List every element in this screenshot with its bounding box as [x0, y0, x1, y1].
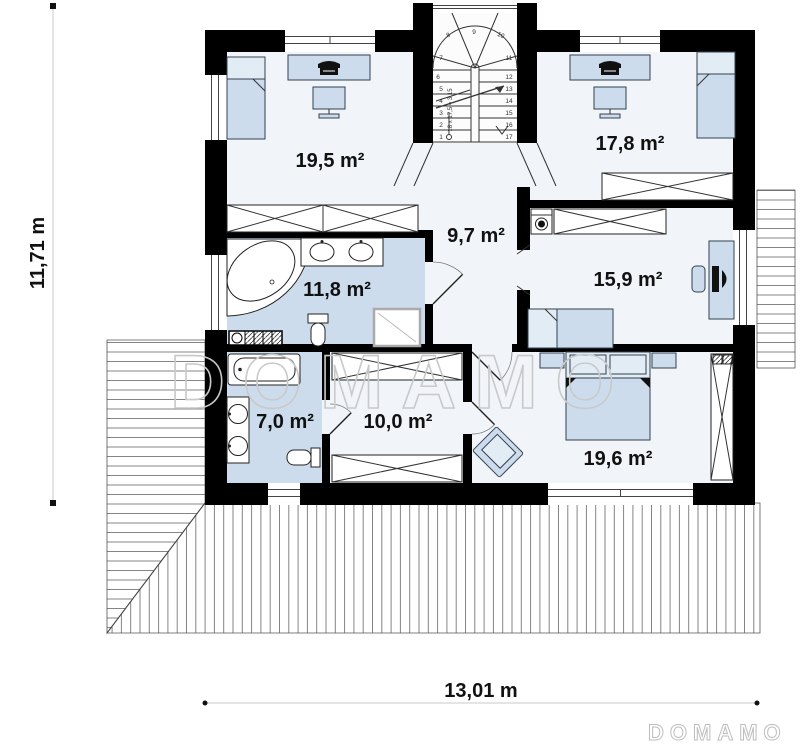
deck-bottom-vertical-planks — [107, 503, 760, 633]
step-number: 9 — [472, 29, 476, 36]
wardrobe-icon — [602, 173, 733, 200]
wardrobe-icon — [711, 354, 733, 480]
window-left-bedroom — [205, 75, 227, 140]
chair-icon — [692, 266, 705, 292]
desk-icon — [570, 55, 650, 80]
room-label-19-5: 19,5 m² — [296, 150, 365, 172]
single-bed-icon — [697, 52, 735, 138]
window-bottom-master — [548, 483, 693, 505]
step-number: 5 — [439, 86, 443, 93]
balcony-door — [733, 230, 755, 325]
window-stairwell — [433, 3, 517, 13]
stair-annotation: 18 x 17,5 = 3,15 — [448, 88, 454, 132]
step-number: 14 — [505, 98, 513, 105]
step-number: 6 — [436, 74, 440, 81]
watermark: DOMAMO — [170, 340, 633, 425]
desk-icon — [288, 55, 370, 80]
desk-icon — [709, 241, 734, 319]
step-number: 17 — [505, 134, 513, 141]
room-label-17-8: 17,8 m² — [596, 133, 665, 155]
step-number: 4 — [439, 98, 443, 105]
step-number: 12 — [505, 74, 513, 81]
window-top-right — [580, 30, 660, 52]
balcony-planks — [757, 190, 795, 368]
floor-plan: 11,71 m 13,01 m — [0, 0, 800, 749]
step-number: 16 — [505, 122, 513, 129]
room-label-19-6: 19,6 m² — [584, 448, 653, 470]
nightstand-icon — [652, 353, 676, 368]
step-number: 3 — [439, 110, 443, 117]
room-label-9-7: 9,7 m² — [447, 225, 505, 247]
toilet-icon — [287, 448, 320, 467]
room-label-11-8: 11,8 m² — [303, 279, 371, 301]
step-number: 11 — [506, 55, 513, 62]
step-number: 15 — [505, 110, 513, 117]
brand-logo: DOMAMO — [648, 720, 787, 745]
wardrobe-icon — [332, 455, 462, 482]
window-left-bathroom — [205, 255, 227, 330]
dimension-label-horizontal: 13,01 m — [444, 680, 517, 702]
hall: 9,7 m² — [447, 225, 505, 247]
step-number: 2 — [439, 122, 443, 129]
single-bed-icon — [227, 57, 265, 139]
room-label-15-9: 15,9 m² — [594, 269, 663, 291]
step-number: 1 — [439, 134, 443, 141]
step-number: 13 — [505, 86, 513, 93]
dimension-label-vertical: 11,71 m — [27, 217, 49, 289]
wardrobe-icon — [554, 209, 666, 234]
wardrobe-icon — [227, 205, 418, 232]
window-bottom-small — [268, 483, 300, 505]
window-top-left — [285, 30, 375, 52]
double-sink-icon — [301, 238, 383, 266]
step-number: 7 — [439, 55, 443, 62]
computer-icon — [712, 266, 719, 292]
washing-machine-icon — [531, 209, 552, 234]
